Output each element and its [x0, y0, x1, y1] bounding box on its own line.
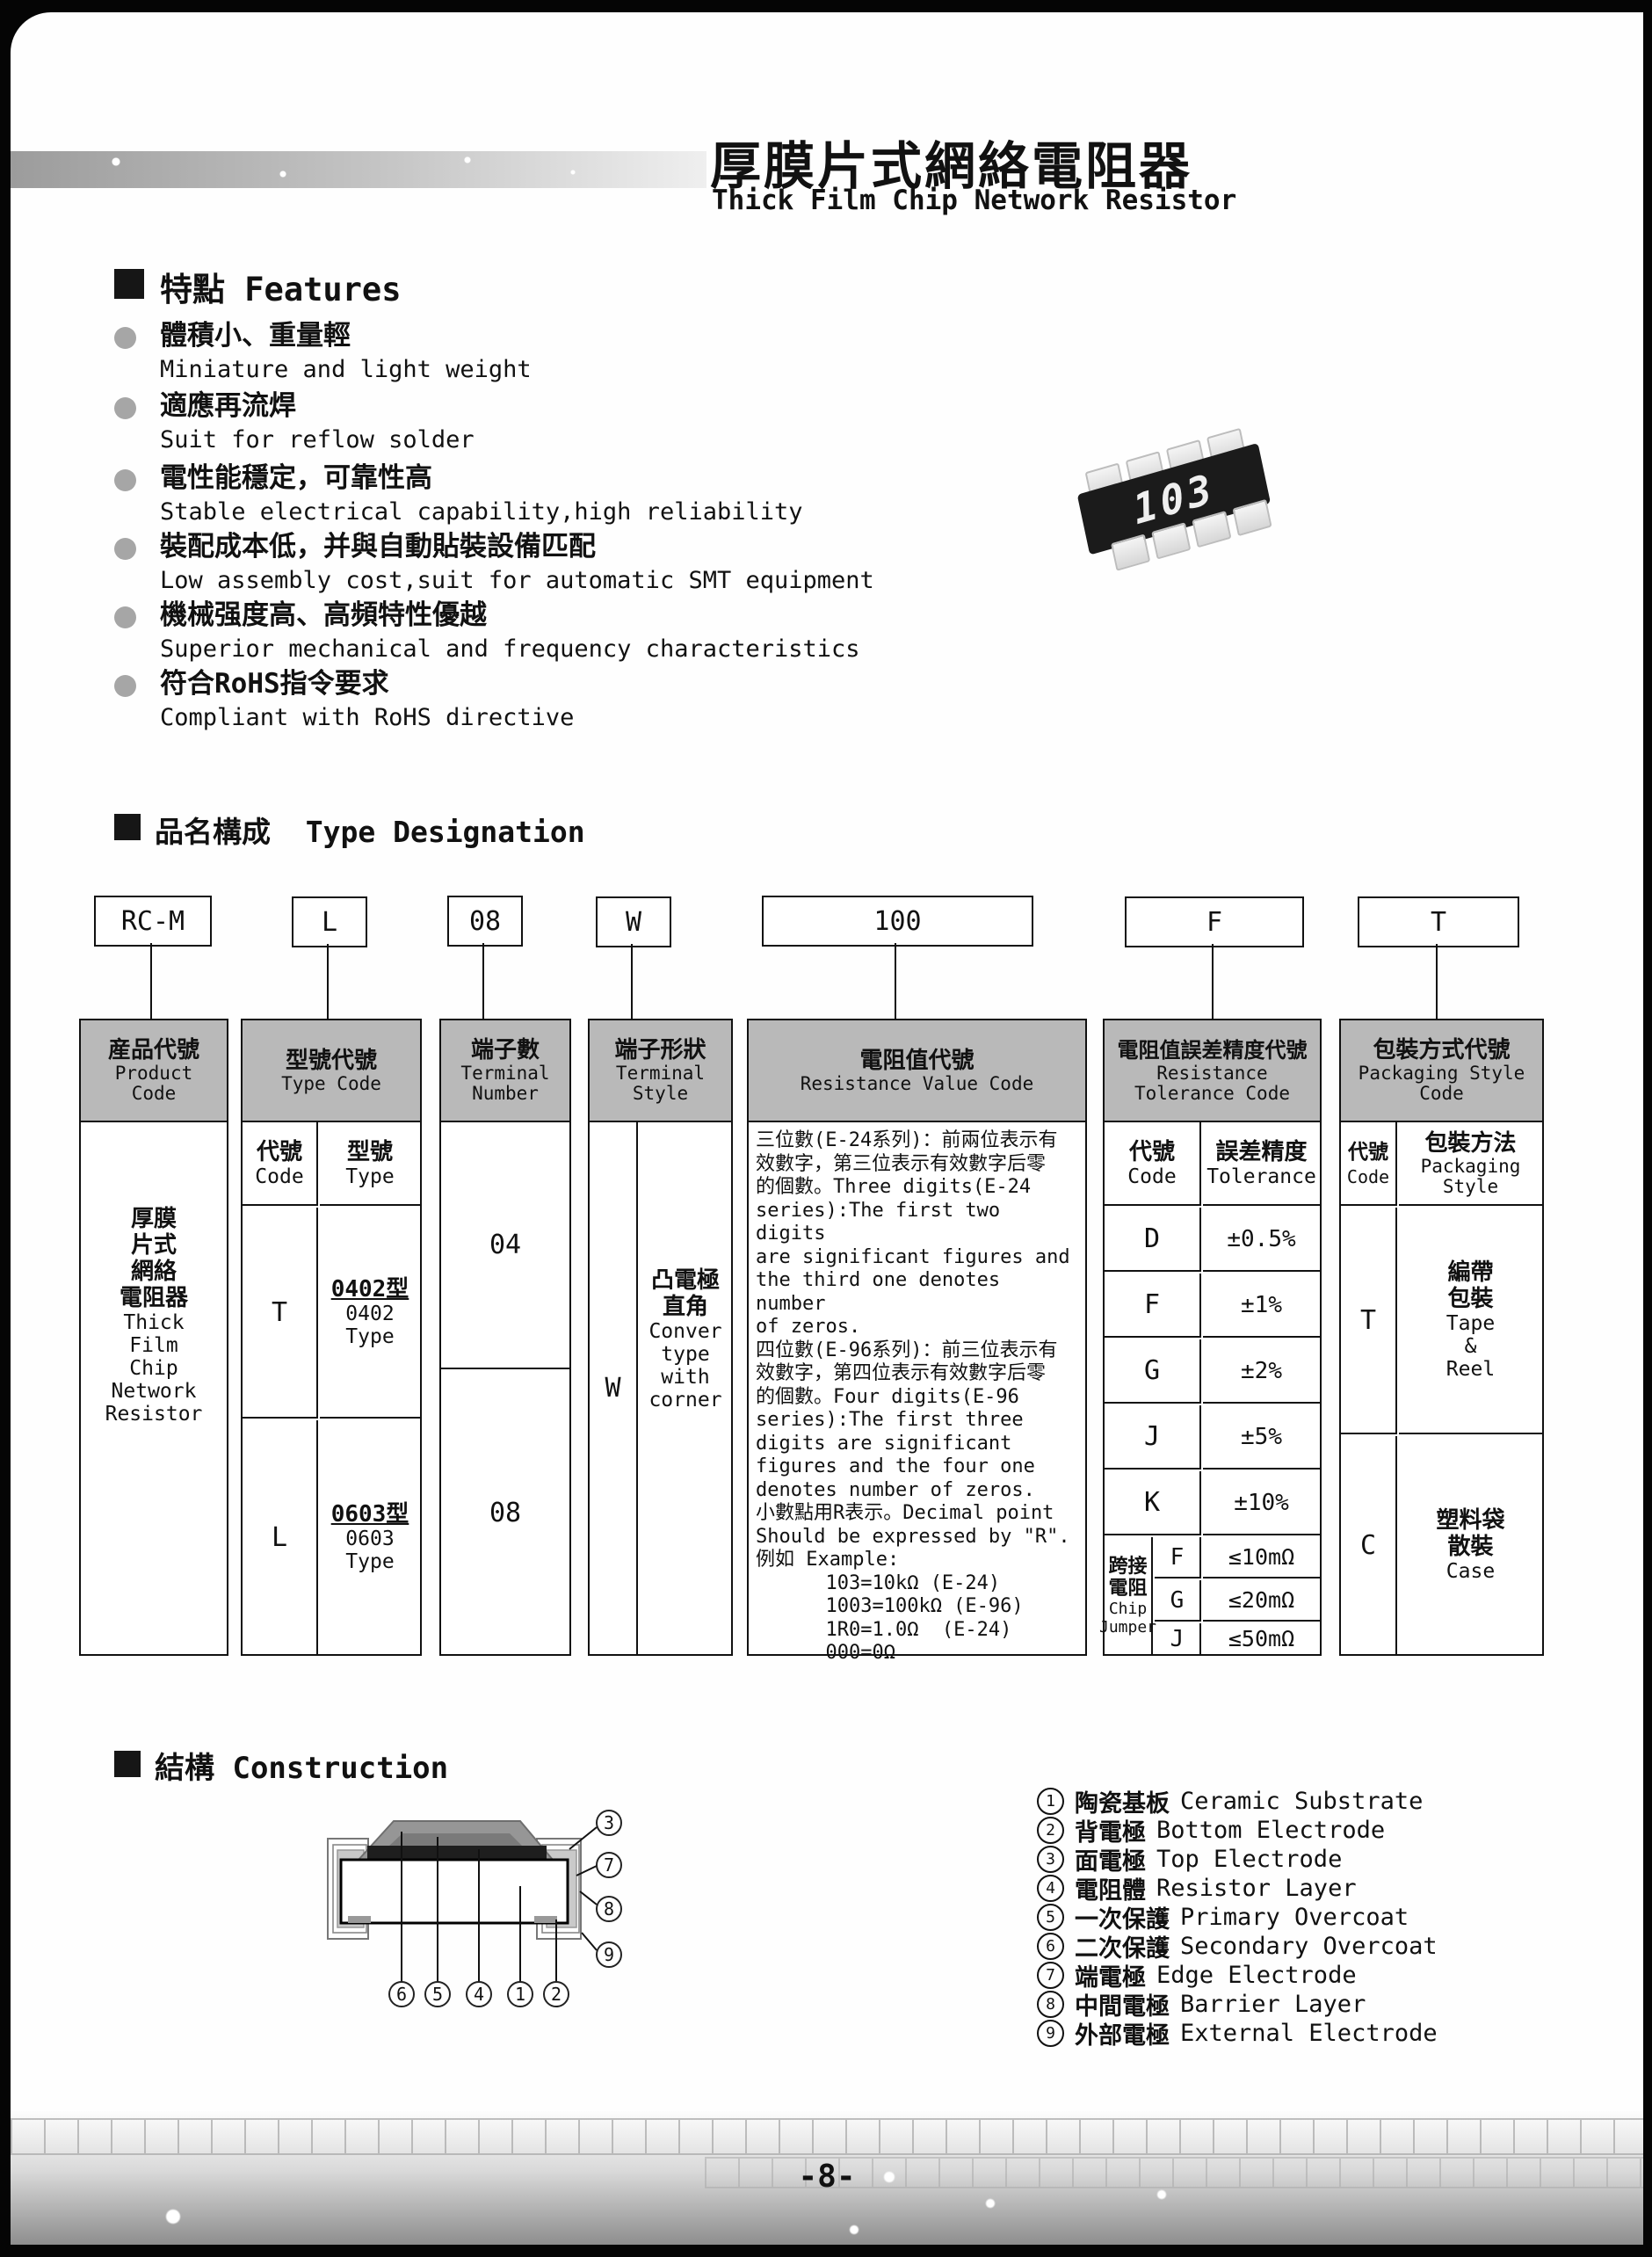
legend-zh: 外部電極: [1075, 2016, 1170, 2050]
designation-heading-en: Type Designation: [306, 815, 585, 849]
feature-zh: 適應再流焊: [160, 390, 975, 422]
code-box-resistance: 100: [762, 896, 1033, 947]
callout-number: 4: [474, 1984, 484, 2005]
tolerance-code: J: [1105, 1405, 1201, 1470]
legend-number-icon: 8: [1037, 1991, 1064, 2018]
jumper-code: F: [1155, 1537, 1201, 1578]
bottom-electrode-right: [534, 1916, 557, 1923]
terminal-style-zh: 凸電極 直角: [651, 1267, 720, 1320]
designation-heading-zh: 品名構成: [155, 815, 271, 849]
callout-number: 7: [604, 1854, 614, 1876]
type-row-code: T: [243, 1208, 318, 1419]
callout-number: 8: [604, 1898, 614, 1920]
sub-en: Type: [345, 1165, 394, 1188]
connector-line: [327, 944, 329, 1019]
legend-number-icon: 4: [1037, 1875, 1064, 1902]
terminal-style-en: Conver type with corner: [648, 1320, 721, 1412]
product-en: Thick Film Chip Network Resistor: [105, 1311, 203, 1426]
page-number: -8-: [11, 2159, 1643, 2195]
header-zh: 産品代號: [108, 1037, 199, 1063]
subheader-style: 包裝方法 Packaging Style: [1399, 1122, 1542, 1206]
section-marker-icon: [114, 814, 141, 840]
jumper-label: 跨接 電阻 Chip Jumper: [1105, 1537, 1153, 1654]
packaging-zh: 編帶 包裝: [1447, 1259, 1493, 1312]
header-en: Type Code: [281, 1074, 381, 1094]
column-header: 包裝方式代號 Packaging Style Code: [1341, 1020, 1542, 1122]
terminal-style-desc: 凸電極 直角 Conver type with corner: [640, 1122, 731, 1654]
code-box-terminal-number: 08: [447, 896, 523, 947]
type-en: 0603 Type: [320, 1528, 420, 1573]
feature-item: 機械强度高、高頻特性優越 Superior mechanical and fre…: [114, 599, 975, 663]
ceramic-substrate: [341, 1860, 568, 1923]
callout-number: 9: [604, 1944, 614, 1965]
callout-number: 2: [551, 1984, 562, 2005]
callout-number: 1: [515, 1984, 525, 2005]
connector-line: [631, 944, 633, 1019]
connector-line: [895, 943, 896, 1019]
feature-en: Miniature and light weight: [160, 357, 975, 383]
construction-heading-zh: 結構: [155, 1751, 214, 1786]
tolerance-code: F: [1105, 1274, 1201, 1338]
legend-number-icon: 6: [1037, 1933, 1064, 1960]
jumper-code: J: [1155, 1623, 1201, 1654]
legend-number-icon: 7: [1037, 1962, 1064, 1989]
column-header: 電阻值代號 Resistance Value Code: [749, 1020, 1085, 1122]
jumper-zh: 跨接 電阻: [1108, 1556, 1147, 1600]
table-group-resistance: 電阻值代號 Resistance Value Code 三位數(E-24系列)：…: [747, 1019, 1087, 1656]
subheader-tolerance: 誤差精度 Tolerance: [1203, 1122, 1320, 1206]
footer-pattern-strip: [11, 2118, 1643, 2155]
connector-line: [1436, 944, 1438, 1019]
feature-en: Superior mechanical and frequency charac…: [160, 636, 975, 663]
jumper-value: ≤10mΩ: [1203, 1537, 1320, 1578]
type-row-desc: 0402型 0402 Type: [320, 1208, 420, 1419]
packaging-code: C: [1341, 1436, 1397, 1654]
designation-heading: 品名構成 Type Designation: [155, 809, 585, 851]
tolerance-value: ±2%: [1203, 1339, 1320, 1404]
table-group-terminal-number: 端子數 Terminal Number 04 08: [439, 1019, 571, 1656]
code-box-tolerance: F: [1125, 896, 1304, 947]
sub-zh: 型號: [347, 1139, 393, 1165]
header-zh: 端子形狀: [614, 1037, 706, 1063]
bullet-icon: [114, 606, 136, 628]
column-header: 型號代號 Type Code: [243, 1020, 420, 1122]
header-en: Packaging Style Code: [1359, 1063, 1525, 1104]
sub-zh: 包裝方法: [1424, 1130, 1516, 1157]
jumper-value: ≤20mΩ: [1203, 1580, 1320, 1622]
jumper-code: G: [1155, 1580, 1201, 1622]
legend-number-icon: 1: [1037, 1788, 1064, 1815]
sub-en: Code: [1127, 1165, 1176, 1188]
header-zh: 包裝方式代號: [1373, 1037, 1510, 1063]
features-heading-en: Features: [244, 271, 401, 308]
header-zh: 型號代號: [286, 1048, 377, 1074]
callout-number: 5: [432, 1984, 443, 2005]
subheader-type: 型號 Type: [320, 1122, 420, 1206]
datasheet-page: { "page": {"number": "-8-"}, "header": {…: [0, 0, 1652, 2257]
bullet-icon: [114, 397, 136, 419]
section-marker-icon: [114, 269, 144, 299]
tolerance-value: ±5%: [1203, 1405, 1320, 1470]
legend-en: Edge Electrode: [1156, 1962, 1357, 1989]
subheader-code: 代號 Code: [1105, 1122, 1201, 1206]
feature-zh: 機械强度高、高頻特性優越: [160, 599, 975, 631]
header-en: Terminal Style: [616, 1063, 705, 1104]
legend-en: Primary Overcoat: [1180, 1904, 1409, 1931]
code-box-type: L: [292, 896, 367, 947]
legend-en: Barrier Layer: [1180, 1991, 1366, 2018]
code-box-terminal-style: W: [596, 896, 671, 947]
feature-item: 裝配成本低，并與自動貼裝設備匹配 Low assembly cost,suit …: [114, 531, 975, 594]
packaging-style: 編帶 包裝 Tape & Reel: [1399, 1208, 1542, 1434]
legend-item: 9 外部電極 External Electrode: [1037, 2016, 1438, 2050]
construction-diagram: 6 5 4 1 2 3 7 8 9: [316, 1805, 650, 2034]
type-zh: 0402型: [331, 1276, 409, 1303]
tolerance-code: G: [1105, 1339, 1201, 1404]
features-heading-zh: 特點: [160, 271, 225, 308]
bullet-icon: [114, 469, 136, 491]
column-header: 産品代號 Product Code: [81, 1020, 227, 1122]
feature-item: 符合RoHS指令要求 Compliant with RoHS directive: [114, 668, 975, 731]
legend-number-icon: 5: [1037, 1904, 1064, 1931]
features-heading: 特點 Features: [160, 263, 402, 310]
bullet-icon: [114, 538, 136, 560]
legend-en: External Electrode: [1180, 2020, 1438, 2047]
header-en: Product Code: [115, 1063, 193, 1104]
jumper-en: Chip Jumper: [1099, 1600, 1156, 1637]
sub-en: Packaging Style: [1421, 1157, 1521, 1197]
header-en: Resistance Value Code: [801, 1074, 1034, 1094]
subheader-code: 代號 Code: [243, 1122, 318, 1206]
callout-line: [582, 1933, 597, 1950]
feature-zh: 裝配成本低，并與自動貼裝設備匹配: [160, 531, 975, 562]
feature-item: 體積小、重量輕 Miniature and light weight: [114, 320, 975, 383]
tolerance-value: ±1%: [1203, 1274, 1320, 1338]
sub-zh: 代號: [1348, 1139, 1388, 1165]
header-zh: 端子數: [471, 1037, 540, 1063]
type-row-code: L: [243, 1420, 318, 1654]
column-header: 端子數 Terminal Number: [441, 1020, 569, 1122]
header-zh: 電阻值誤差精度代號: [1118, 1037, 1308, 1063]
page-title-en: Thick Film Chip Network Resistor: [712, 185, 1236, 216]
product-zh: 厚膜 片式 網絡 電阻器: [120, 1206, 188, 1311]
sub-zh: 誤差精度: [1215, 1139, 1307, 1165]
jumper-value: ≤50mΩ: [1203, 1623, 1320, 1654]
tolerance-value: ±10%: [1203, 1471, 1320, 1535]
packaging-zh: 塑料袋 散裝: [1436, 1507, 1504, 1560]
table-group-tolerance: 電阻值誤差精度代號 Resistance Tolerance Code 代號 C…: [1103, 1019, 1322, 1656]
page: 厚膜片式網絡電阻器 Thick Film Chip Network Resist…: [11, 12, 1643, 2245]
feature-zh: 體積小、重量輕: [160, 320, 975, 352]
bottom-electrode-left: [348, 1916, 371, 1923]
legend-number-icon: 3: [1037, 1846, 1064, 1873]
feature-en: Stable electrical capability,high reliab…: [160, 499, 975, 526]
code-box-packaging: T: [1358, 896, 1519, 947]
callout-line: [580, 1891, 597, 1905]
sub-en: Code: [1347, 1165, 1389, 1188]
column-header: 電阻值誤差精度代號 Resistance Tolerance Code: [1105, 1020, 1320, 1122]
terminal-style-code: W: [590, 1122, 638, 1654]
table-group-packaging: 包裝方式代號 Packaging Style Code 代號 Code 包裝方法…: [1339, 1019, 1544, 1656]
header-gradient-band: [11, 151, 706, 188]
resistance-value-text: 三位數(E-24系列)：前兩位表示有 效數字，第三位表示有效數字后零 的個數。T…: [749, 1122, 1085, 1654]
feature-en: Compliant with RoHS directive: [160, 705, 975, 731]
chip-photo: 103: [1073, 418, 1299, 620]
sub-zh: 代號: [1129, 1139, 1175, 1165]
resistor-layer: [367, 1846, 547, 1860]
type-zh: 0603型: [331, 1501, 409, 1528]
tolerance-value: ±0.5%: [1203, 1208, 1320, 1272]
terminal-number-cell: 04: [441, 1122, 569, 1369]
connector-line: [150, 943, 152, 1019]
callout-number: 6: [396, 1984, 407, 2005]
feature-item: 適應再流焊 Suit for reflow solder: [114, 390, 975, 454]
header-zh: 電阻值代號: [859, 1048, 974, 1074]
legend-number-icon: 9: [1037, 2020, 1064, 2047]
legend-en: Secondary Overcoat: [1180, 1933, 1438, 1960]
bullet-icon: [114, 327, 136, 349]
packaging-en: Case: [1446, 1560, 1495, 1583]
sub-zh: 代號: [257, 1139, 302, 1165]
feature-zh: 符合RoHS指令要求: [160, 668, 975, 700]
construction-heading: 結構 Construction: [155, 1744, 448, 1787]
bullet-icon: [114, 675, 136, 697]
sub-en: Tolerance: [1206, 1165, 1316, 1188]
legend-en: Top Electrode: [1156, 1846, 1342, 1873]
table-group-type: 型號代號 Type Code 代號 Code 型號 Type T 0402型 0…: [241, 1019, 422, 1656]
tolerance-code: D: [1105, 1208, 1201, 1272]
feature-en: Low assembly cost,suit for automatic SMT…: [160, 568, 975, 594]
legend-en: Ceramic Substrate: [1180, 1788, 1423, 1815]
terminal-number-cell: 08: [441, 1371, 569, 1654]
connector-line: [482, 943, 484, 1019]
table-group-terminal-style: 端子形狀 Terminal Style W 凸電極 直角 Conver type…: [588, 1019, 733, 1656]
packaging-style: 塑料袋 散裝 Case: [1399, 1436, 1542, 1654]
table-group-product: 産品代號 Product Code 厚膜 片式 網絡 電阻器 Thick Fil…: [79, 1019, 228, 1656]
subheader-code: 代號 Code: [1341, 1122, 1397, 1206]
legend-en: Bottom Electrode: [1156, 1817, 1385, 1844]
legend-number-icon: 2: [1037, 1817, 1064, 1844]
feature-zh: 電性能穩定，可靠性高: [160, 462, 975, 494]
tolerance-code: K: [1105, 1471, 1201, 1535]
code-box-product: RC-M: [94, 896, 212, 947]
sub-en: Code: [255, 1165, 303, 1188]
feature-item: 電性能穩定，可靠性高 Stable electrical capability,…: [114, 462, 975, 526]
connector-line: [1212, 944, 1214, 1019]
packaging-en: Tape & Reel: [1446, 1312, 1495, 1381]
feature-en: Suit for reflow solder: [160, 427, 975, 454]
header-en: Resistance Tolerance Code: [1134, 1063, 1290, 1104]
packaging-code: T: [1341, 1208, 1397, 1434]
type-en: 0402 Type: [320, 1303, 420, 1348]
header-en: Terminal Number: [460, 1063, 549, 1104]
type-row-desc: 0603型 0603 Type: [320, 1420, 420, 1654]
column-header: 端子形狀 Terminal Style: [590, 1020, 731, 1122]
section-marker-icon: [114, 1751, 141, 1777]
construction-heading-en: Construction: [232, 1751, 448, 1786]
callout-number: 3: [604, 1812, 614, 1833]
product-body-cell: 厚膜 片式 網絡 電阻器 Thick Film Chip Network Res…: [81, 1122, 227, 1654]
legend-en: Resistor Layer: [1156, 1875, 1357, 1902]
